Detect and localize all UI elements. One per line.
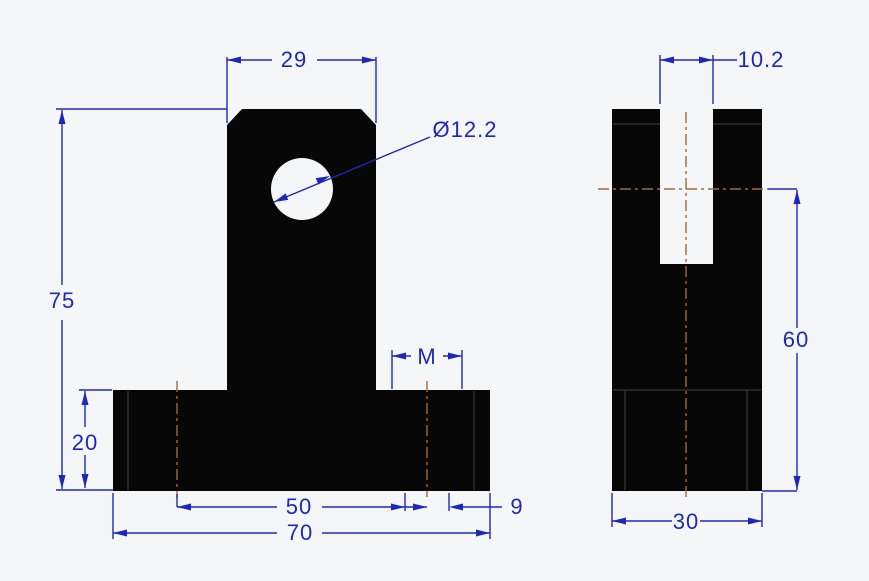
arrowhead-icon [82,474,89,488]
arrowhead-icon [391,504,405,511]
dim-label: M [417,344,436,369]
arrowhead-icon [476,530,490,537]
dimension-depth: 30 [612,493,762,534]
arrowhead-icon [612,518,626,525]
dimension-hole-spacing: 50 [177,494,427,519]
arrowhead-icon [794,476,801,490]
dim-label: 60 [783,327,809,352]
dim-label: Ø12.2 [433,117,498,142]
arrowhead-icon [449,504,463,511]
arrowhead-icon [392,353,406,360]
dim-label: 75 [49,288,75,313]
front-view [113,109,490,497]
dim-label: 30 [673,509,699,534]
arrowhead-icon [413,504,427,511]
arrowhead-icon [59,110,66,124]
arrowhead-icon [794,190,801,204]
technical-drawing-canvas: 29 Ø12.2 75 20 M [0,0,869,581]
front-base-flange [113,390,490,491]
drawing-sheet: 29 Ø12.2 75 20 M [0,0,869,581]
dim-label: 29 [281,47,307,72]
front-upright-column [227,109,376,390]
arrowhead-icon [699,57,713,64]
arrowhead-icon [448,353,462,360]
dim-label: 10.2 [738,47,785,72]
front-hole [271,158,333,220]
dim-label: 70 [287,520,313,545]
arrowhead-icon [227,57,241,64]
arrowhead-icon [177,504,191,511]
dim-label: 20 [72,430,98,455]
dimension-slot-width: 10.2 [660,47,784,104]
arrowhead-icon [113,530,127,537]
arrowhead-icon [82,391,89,405]
dimension-hole-width: 9 [391,493,524,519]
dimension-base-height: 20 [72,390,112,488]
arrowhead-icon [660,57,674,64]
arrowhead-icon [59,475,66,489]
dimension-center-height: 60 [762,189,809,491]
dim-label: 9 [510,494,523,519]
side-view [598,109,768,497]
arrowhead-icon [748,518,762,525]
arrowhead-icon [362,57,376,64]
dim-label: 50 [286,494,312,519]
